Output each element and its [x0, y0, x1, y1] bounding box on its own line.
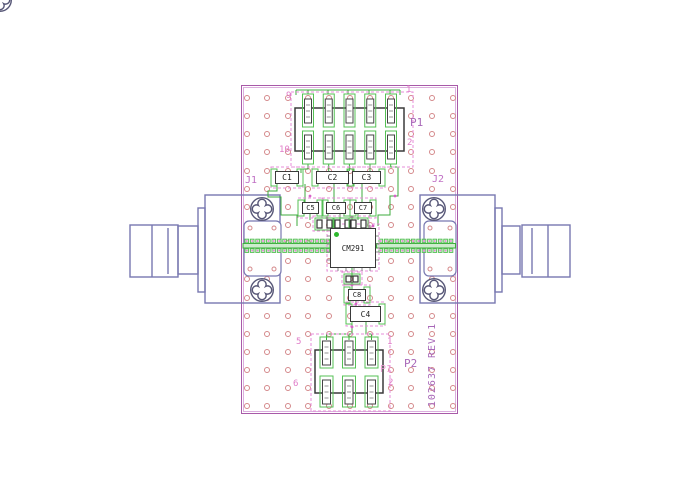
top-header-pin2: 2 — [407, 139, 412, 148]
ic-refdes: CM291 — [342, 244, 365, 253]
capacitor-c6: C6 — [326, 202, 346, 214]
fence-via-hole — [311, 250, 313, 252]
fence-via-hole — [428, 250, 430, 252]
fence-via-hole — [391, 240, 393, 242]
fence-via-hole — [418, 250, 420, 252]
fence-via-hole — [445, 240, 447, 242]
fence-via-hole — [407, 250, 409, 252]
bottom-header-label: P2 — [404, 358, 417, 369]
fence-via-hole — [289, 240, 291, 242]
small-passive-pad — [327, 220, 332, 228]
capacitor-c1: C1 — [275, 171, 299, 184]
bottom-header-pin1: 1 — [387, 338, 392, 347]
fence-via-hole — [316, 250, 318, 252]
pcb-layout-canvas: C1 C2 C3 C5 C6 C7 C8 C4 CM291 J1 J2 P1 P… — [0, 0, 700, 500]
top-header-pin10: 10 — [279, 146, 290, 155]
fence-via-hole — [385, 250, 387, 252]
fence-via-hole — [401, 240, 403, 242]
fence-via-hole — [257, 240, 259, 242]
screw-icon — [423, 198, 446, 221]
fence-via-hole — [300, 250, 302, 252]
fence-via-hole — [273, 240, 275, 242]
capacitor-c5: C5 — [302, 202, 319, 214]
top-header-pin1: 1 — [406, 86, 411, 95]
fence-via-hole — [396, 250, 398, 252]
fence-via-hole — [273, 250, 275, 252]
top-header-label: P1 — [410, 117, 423, 128]
small-passive-pad — [317, 220, 322, 228]
fence-via-hole — [262, 250, 264, 252]
fence-via-hole — [251, 250, 253, 252]
capacitor-c8: C8 — [348, 289, 366, 301]
connector-label-j2: J2 — [432, 175, 444, 185]
small-passive-pad — [361, 220, 366, 228]
fence-via-hole — [267, 250, 269, 252]
fence-via-hole — [289, 250, 291, 252]
fence-via-hole — [391, 250, 393, 252]
fence-via-hole — [284, 250, 286, 252]
capacitor-c2: C2 — [316, 171, 349, 184]
screw-icon — [251, 279, 274, 302]
fence-via-hole — [445, 250, 447, 252]
fence-via-hole — [380, 240, 382, 242]
fence-via-hole — [257, 250, 259, 252]
bottom-header-alt-label: P1 — [380, 365, 392, 375]
fence-via-hole — [439, 240, 441, 242]
fence-via-hole — [305, 240, 307, 242]
fence-via-hole — [246, 250, 248, 252]
board-rev-text: 102637 REV 1 — [428, 321, 438, 409]
small-passive-pad — [351, 220, 356, 228]
fence-via-hole — [412, 240, 414, 242]
bottom-header-pin5: 5 — [296, 338, 301, 347]
fence-via-hole — [305, 250, 307, 252]
bottom-header-pin2: 2 — [388, 379, 393, 388]
bottom-header-pin6: 6 — [293, 380, 298, 389]
fence-via-hole — [294, 240, 296, 242]
small-passive-pad — [353, 276, 358, 282]
fence-via-hole — [251, 240, 253, 242]
fence-via-hole — [439, 250, 441, 252]
pin1-marker-dot-icon — [334, 232, 339, 237]
fence-via-hole — [407, 240, 409, 242]
fence-via-hole — [321, 250, 323, 252]
screw-icon — [423, 279, 446, 302]
capacitor-c3: C3 — [352, 171, 381, 184]
fence-via-hole — [418, 240, 420, 242]
fence-via-hole — [267, 240, 269, 242]
fence-via-hole — [278, 250, 280, 252]
screw-icon — [251, 198, 274, 221]
fence-via-hole — [396, 240, 398, 242]
capacitor-c7: C7 — [354, 202, 372, 214]
fence-via-hole — [380, 250, 382, 252]
capacitor-c4: C4 — [350, 306, 381, 322]
fence-via-hole — [385, 240, 387, 242]
fence-via-hole — [401, 250, 403, 252]
ic-body: CM291 — [330, 228, 376, 268]
small-passive-pad — [346, 276, 351, 282]
fence-via-hole — [246, 240, 248, 242]
top-header-pin9: 9 — [286, 92, 291, 101]
fence-via-hole — [284, 240, 286, 242]
fence-via-hole — [412, 250, 414, 252]
small-passive-pad — [335, 220, 340, 228]
fence-via-hole — [423, 240, 425, 242]
fence-via-hole — [262, 240, 264, 242]
fence-via-hole — [316, 240, 318, 242]
fence-via-hole — [450, 250, 452, 252]
fence-via-hole — [300, 240, 302, 242]
fence-via-hole — [450, 240, 452, 242]
fence-via-hole — [428, 240, 430, 242]
fence-via-hole — [434, 250, 436, 252]
fence-via-hole — [423, 250, 425, 252]
fence-via-hole — [311, 240, 313, 242]
fence-via-hole — [321, 240, 323, 242]
fence-via-hole — [294, 250, 296, 252]
fence-via-hole — [434, 240, 436, 242]
connector-label-j1: J1 — [245, 176, 257, 186]
fence-via-hole — [278, 240, 280, 242]
